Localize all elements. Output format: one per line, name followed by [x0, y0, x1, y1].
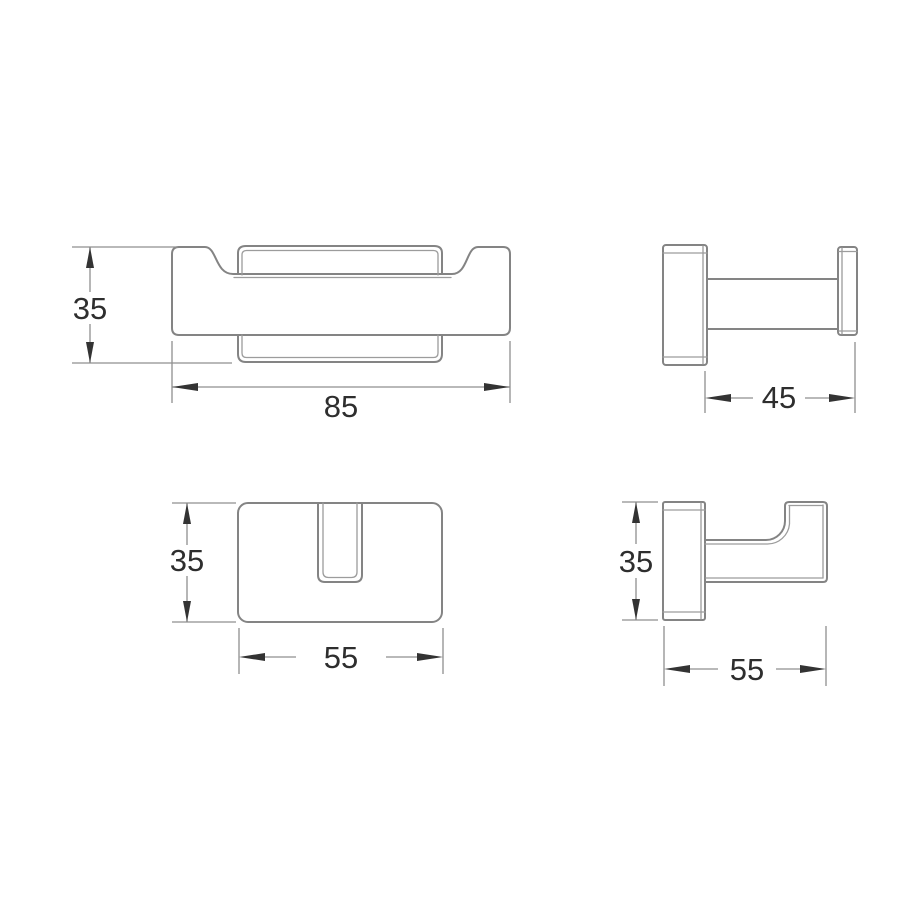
- hook-arm-inner-edge: [705, 506, 790, 544]
- plan-height-label: 35: [170, 543, 204, 578]
- profile-height-arrow-down: [632, 599, 640, 620]
- plan-width-label: 55: [324, 640, 358, 675]
- profile-height-label: 35: [619, 544, 653, 579]
- hook-profile-outline: [705, 502, 827, 582]
- plan-height-arrow-down: [183, 601, 191, 622]
- wall-plate-profile-outline: [663, 502, 705, 620]
- wall-plate-bottom-inner-edge: [242, 335, 438, 358]
- bar-end-outline: [838, 247, 857, 335]
- front-height-arrow-down: [86, 342, 94, 363]
- plan-height-arrow-up: [183, 503, 191, 524]
- side-depth-arrow-right: [829, 394, 855, 402]
- profile-width-arrow-right: [800, 665, 826, 673]
- profile-view: [663, 502, 827, 620]
- plan-width-arrow-left: [239, 653, 265, 661]
- drawing-svg: 35 85 45 35 55 35 55: [0, 0, 919, 919]
- plan-width-arrow-right: [417, 653, 443, 661]
- front-width-arrow-left: [172, 383, 198, 391]
- plate-plan-outline: [238, 503, 442, 622]
- front-view: [172, 246, 510, 362]
- side-depth-label: 45: [762, 380, 796, 415]
- hook-bar-outline: [172, 247, 510, 335]
- front-width-label: 85: [324, 389, 358, 424]
- profile-width-arrow-left: [664, 665, 690, 673]
- front-height-label: 35: [73, 291, 107, 326]
- wall-plate-side-outline: [663, 245, 707, 365]
- plan-view: [238, 503, 442, 622]
- technical-drawing-page: 35 85 45 35 55 35 55: [0, 0, 919, 919]
- wall-plate-top-inner-edge: [242, 251, 438, 276]
- profile-width-label: 55: [730, 652, 764, 687]
- side-depth-arrow-left: [705, 394, 731, 402]
- geometry-layer: [172, 245, 857, 622]
- front-width-arrow-right: [484, 383, 510, 391]
- side-view: [663, 245, 857, 365]
- front-height-arrow-up: [86, 247, 94, 268]
- profile-height-arrow-up: [632, 502, 640, 523]
